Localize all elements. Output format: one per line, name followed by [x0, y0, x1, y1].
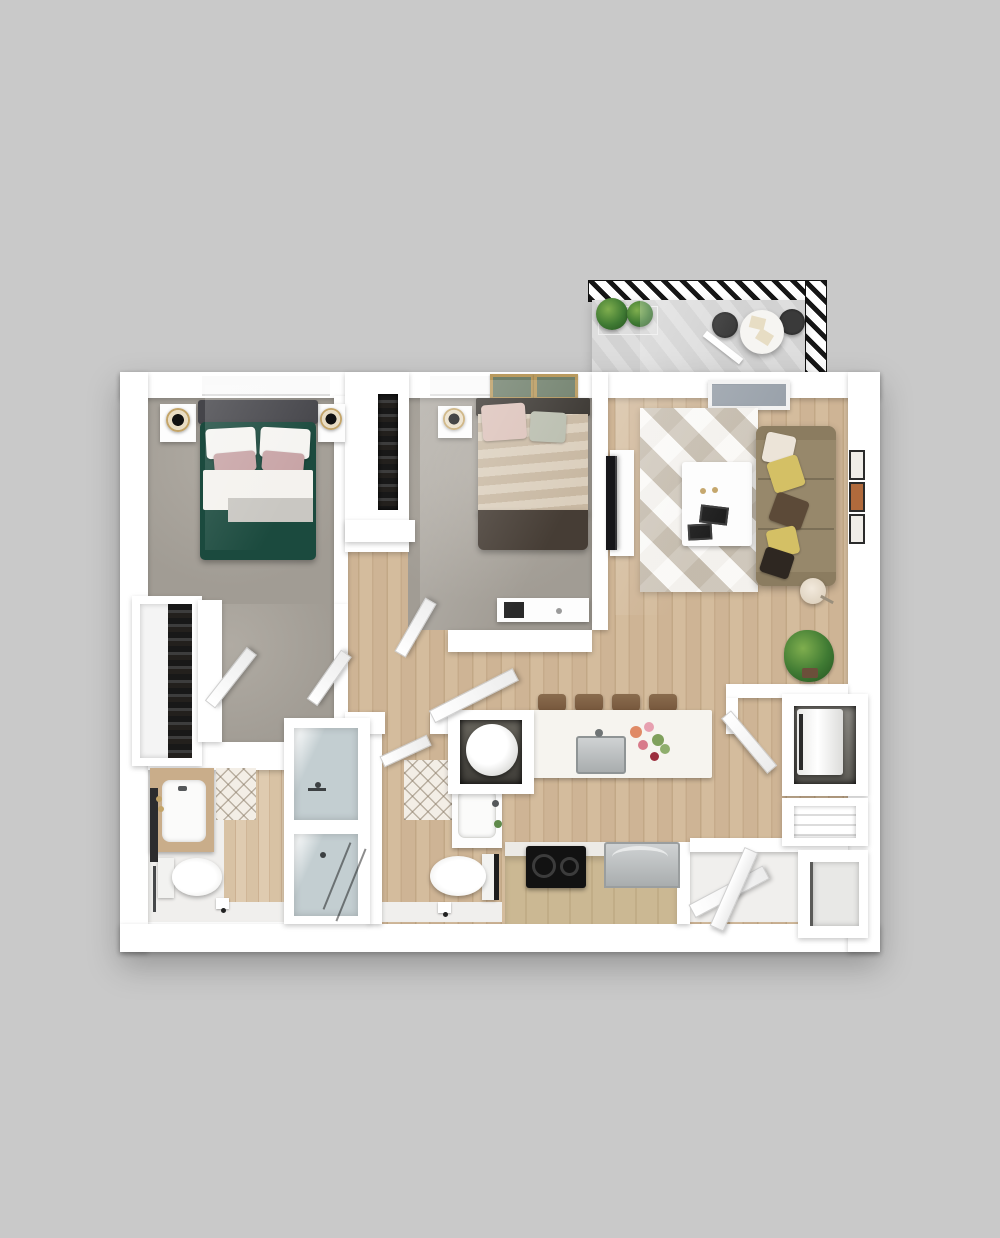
cooktop-burner	[560, 857, 579, 876]
bed-pillow	[481, 403, 527, 442]
cooktop-burner	[532, 854, 556, 878]
bath1-tile-mat	[216, 768, 256, 820]
toilet-flush-panel	[494, 854, 499, 900]
walkin-closet-clothes	[168, 604, 192, 758]
bed2-foot-blanket	[478, 510, 588, 550]
island-sink	[576, 736, 626, 774]
balcony-plant-icon	[627, 301, 653, 327]
washer-control-slot	[799, 714, 803, 770]
wall-bedroom2-south	[448, 630, 592, 652]
bed-pillow	[529, 411, 567, 443]
table-lamp-icon	[166, 408, 190, 432]
bed1-headboard	[198, 400, 318, 424]
island-flowers	[638, 740, 648, 750]
wall-below-closet	[345, 520, 415, 542]
bath2-sink	[458, 790, 496, 838]
bar-stool	[649, 694, 677, 711]
wall-bathroom2-west	[368, 712, 382, 924]
tv-remote	[688, 523, 713, 540]
wall-frame	[490, 374, 534, 400]
island-flowers	[644, 722, 654, 732]
patio-chair	[712, 312, 738, 338]
bath2-faucet-icon	[492, 800, 499, 807]
table-lamp-icon	[443, 408, 465, 430]
vanity-plant-dot	[494, 820, 502, 828]
bedroom1-window	[202, 376, 330, 396]
floor-plan-canvas	[0, 0, 1000, 1238]
island-flowers	[650, 752, 659, 761]
bar-stool	[575, 694, 603, 711]
coat-closet-interior	[810, 862, 859, 926]
island-flowers	[630, 726, 642, 738]
balcony-plant-icon	[596, 298, 628, 330]
towel-bar	[153, 866, 156, 912]
table-decor-dot	[700, 488, 706, 494]
soap-dot	[156, 796, 162, 802]
closet-clothes	[378, 394, 398, 510]
water-heater	[466, 724, 518, 776]
paper-holder-dot	[221, 908, 226, 913]
tv-remote	[699, 504, 729, 525]
soap-dot	[158, 806, 164, 812]
shower-glass	[294, 728, 358, 820]
wall-frame	[849, 482, 865, 512]
tv-screen	[606, 456, 617, 550]
sink-faucet-icon	[595, 729, 603, 737]
appliance-handle	[612, 846, 668, 868]
bed1-blanket-fold	[228, 498, 313, 522]
shower-fixture-icon	[308, 788, 326, 791]
wall-frame	[849, 514, 865, 544]
table-lamp-icon	[320, 408, 342, 430]
toilet-bowl	[172, 858, 222, 896]
bath1-faucet-icon	[178, 786, 187, 791]
console-tv-panel	[504, 602, 524, 618]
console-knob	[556, 608, 562, 614]
bar-stool	[538, 694, 566, 711]
wall-frame	[534, 374, 578, 400]
shower-fixture-icon	[315, 782, 321, 788]
wall-frame	[849, 450, 865, 480]
paper-holder-dot	[443, 912, 448, 917]
floor-lamp-icon	[800, 578, 826, 604]
toilet-bowl	[430, 856, 486, 896]
balcony-sliding-door	[708, 380, 790, 410]
wall-bottom	[120, 924, 880, 952]
bar-stool	[612, 694, 640, 711]
balcony-hatch-top	[588, 280, 827, 302]
washer	[797, 709, 843, 775]
table-decor-dot	[712, 487, 718, 493]
wall-closet-east	[198, 600, 222, 742]
balcony-hatch-right	[805, 280, 827, 378]
shelf-closet-interior	[794, 806, 856, 838]
bath2-tile-mat	[404, 760, 452, 820]
island-flowers	[660, 744, 670, 754]
shower-fixture-icon	[320, 852, 326, 858]
plant-pot	[802, 668, 818, 678]
